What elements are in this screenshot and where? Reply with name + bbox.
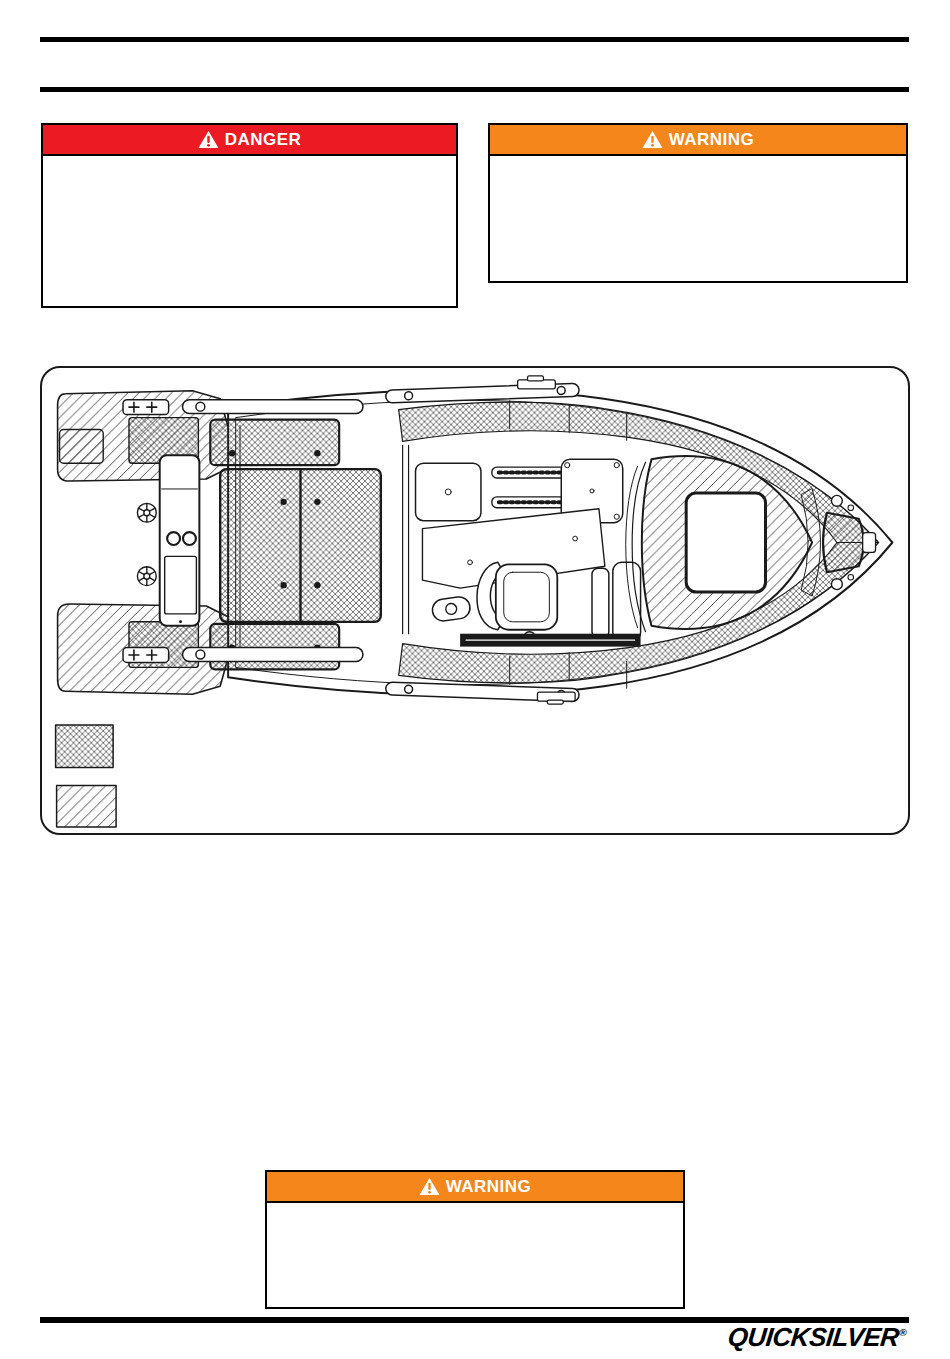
diagonal-hatch-legend-swatch [57, 785, 116, 827]
bow-anchor-area [801, 489, 875, 596]
anchor-hatch [823, 513, 864, 572]
danger-label: DANGER [225, 130, 302, 150]
warning-triangle-icon [198, 130, 219, 149]
top-rule-1 [40, 37, 909, 42]
warning-top-box: WARNING [488, 123, 908, 283]
top-rule-2 [40, 87, 909, 92]
boat-top-view-diagram [42, 368, 908, 833]
warning-bottom-box: WARNING [265, 1170, 685, 1309]
warning-bottom-label: WARNING [446, 1177, 532, 1197]
warning-top-body [490, 156, 906, 281]
quicksilver-logo: QUICKSILVER® [726, 1322, 907, 1353]
brand-wordmark: QUICKSILVER [726, 1322, 900, 1352]
danger-box: DANGER [41, 123, 458, 308]
crosshatch-legend-swatch [56, 725, 114, 768]
warning-top-label: WARNING [669, 130, 755, 150]
danger-body [43, 156, 456, 306]
legend [56, 725, 116, 827]
boat-diagram-panel [40, 366, 910, 835]
warning-bottom-header: WARNING [267, 1172, 683, 1203]
warning-top-header: WARNING [490, 125, 906, 156]
warning-bottom-body [267, 1203, 683, 1307]
warning-triangle-icon [419, 1177, 440, 1196]
transom-console [160, 455, 200, 626]
warning-triangle-icon [642, 130, 663, 149]
roof-hatch-opening [686, 493, 765, 592]
danger-header: DANGER [43, 125, 456, 156]
transom-vent-fans [137, 503, 156, 585]
manual-page: DANGER WARNING [0, 0, 950, 1359]
sliding-door-track [460, 634, 640, 647]
registered-trademark-symbol: ® [899, 1327, 908, 1338]
